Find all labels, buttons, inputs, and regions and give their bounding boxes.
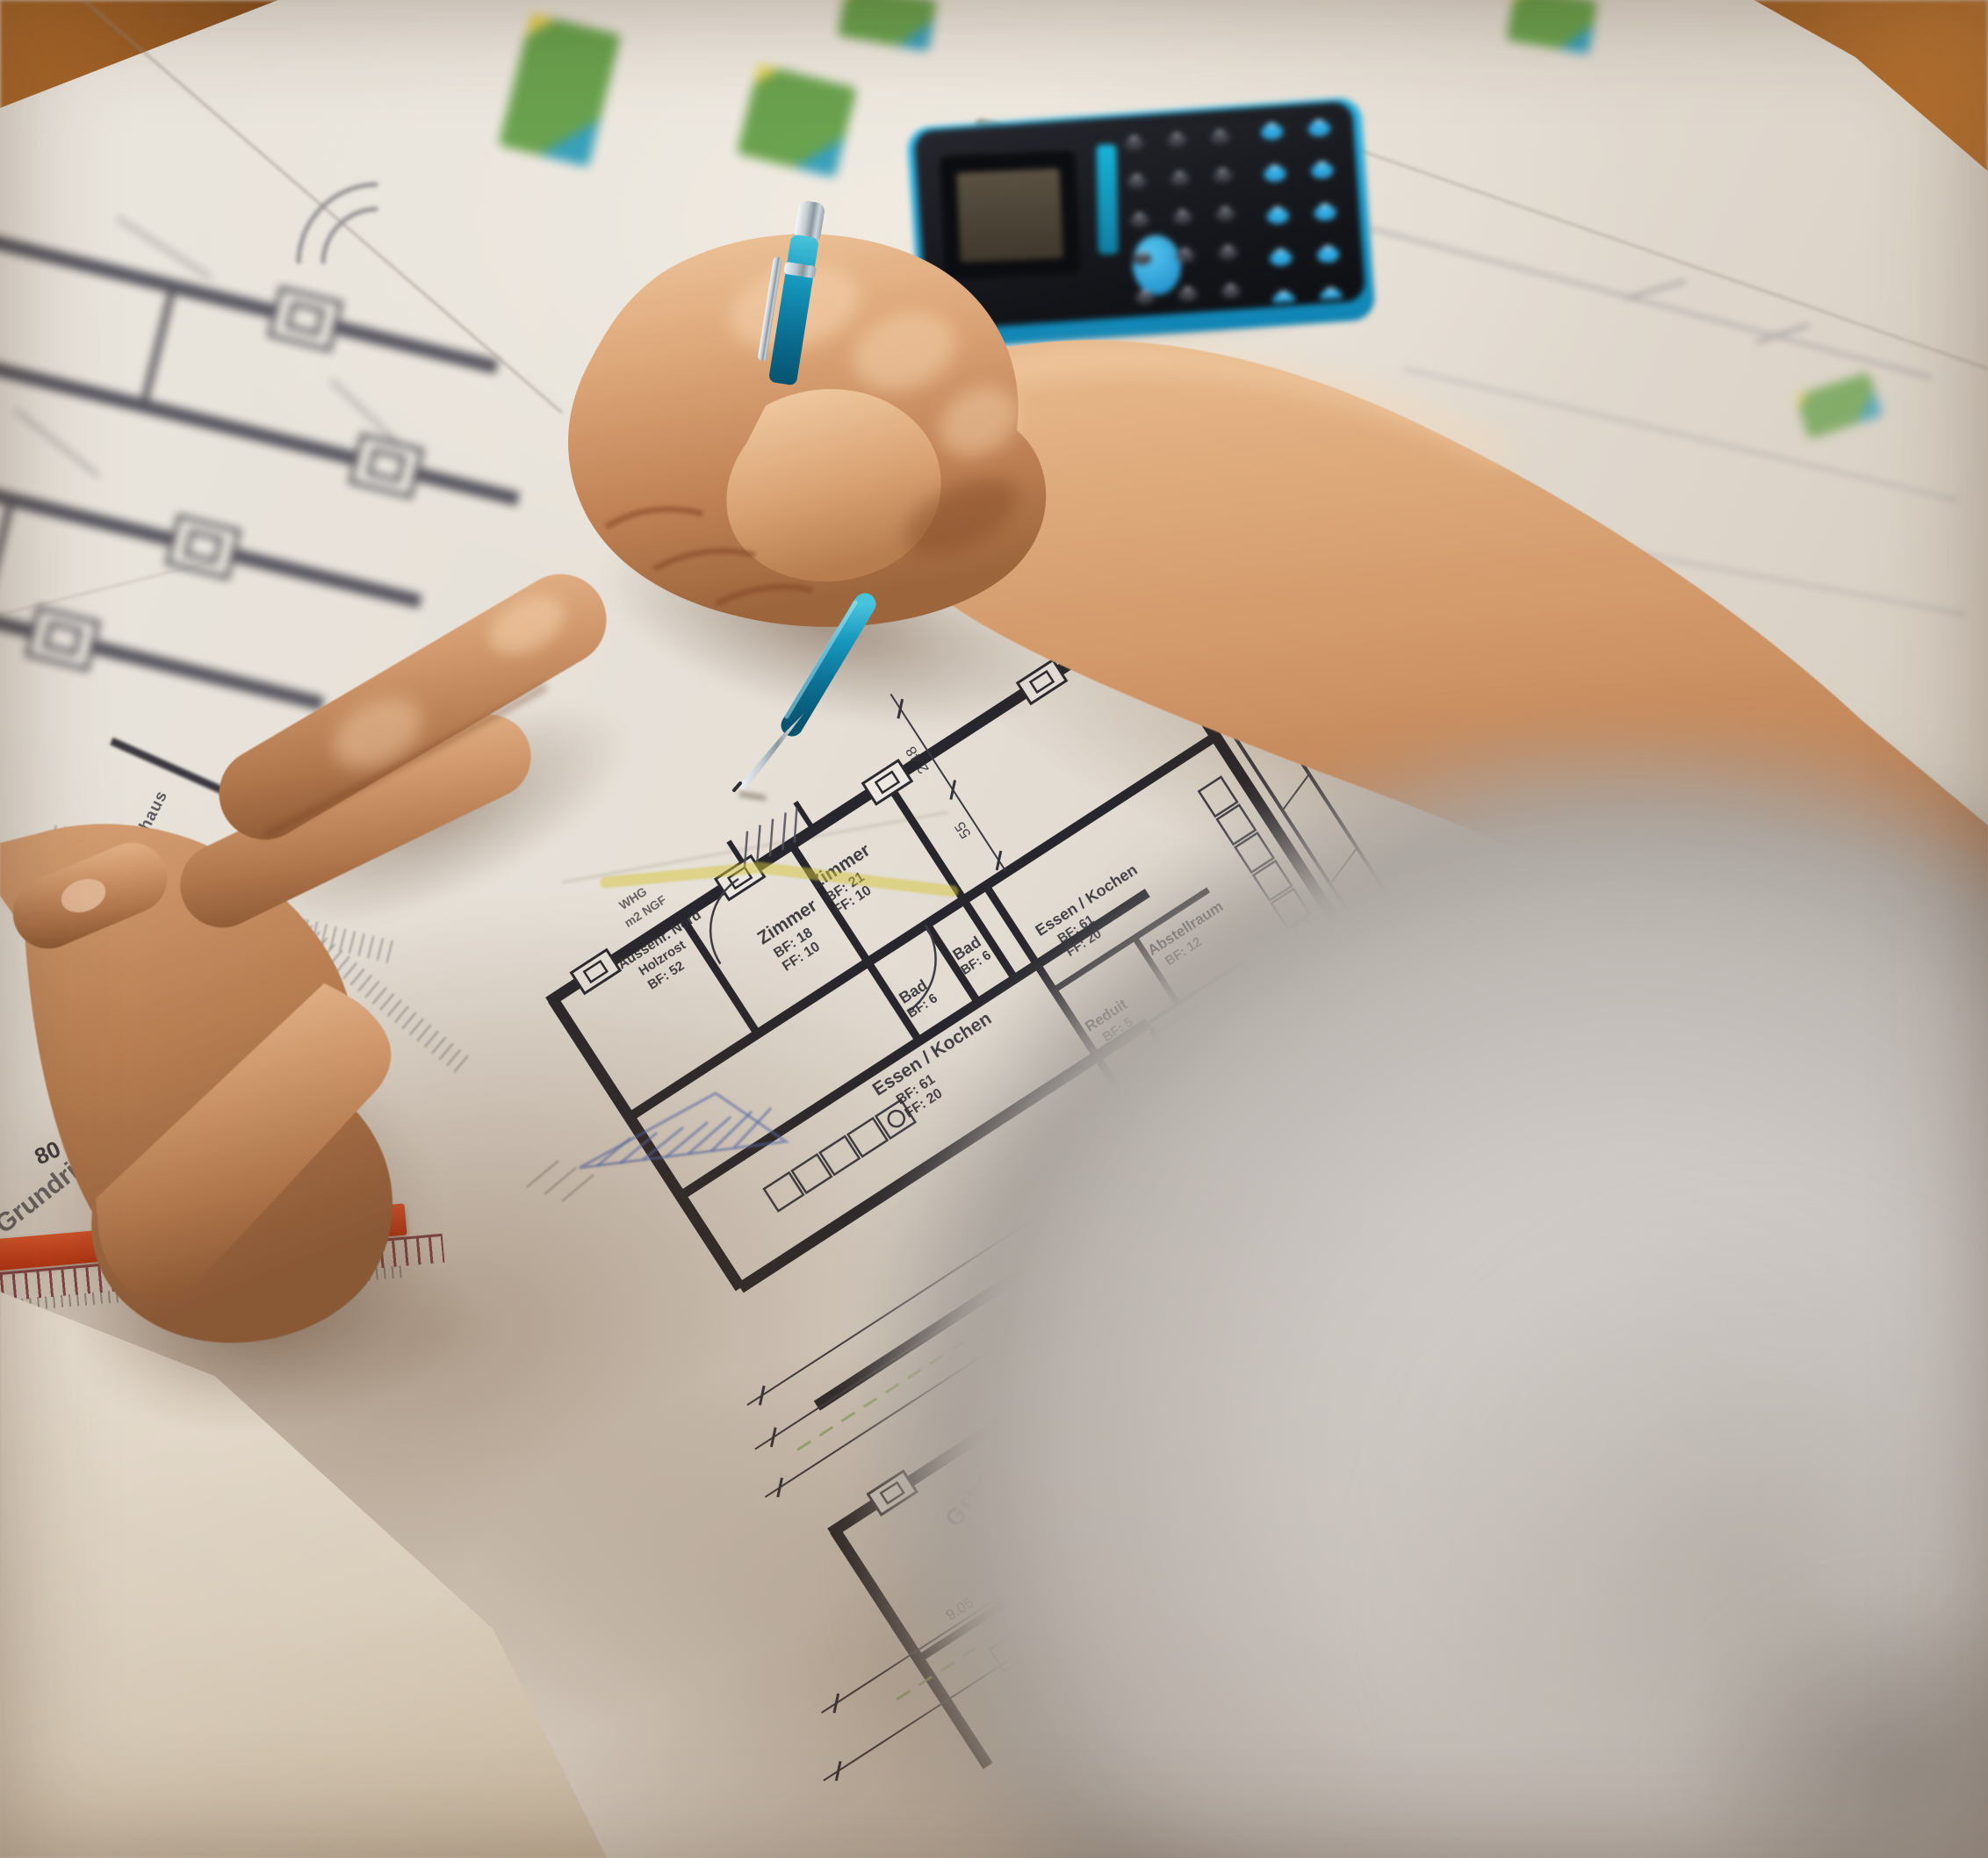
pencil-lead bbox=[734, 783, 740, 790]
pencil-tip-shadow bbox=[739, 794, 766, 798]
blurred-shoulder-corner bbox=[1668, 1581, 1988, 1858]
photo-architect-working-on-blueprints: Lift 2.95 55 9.05 63.50 9.08 9.05 63.50 … bbox=[0, 0, 1988, 1858]
pencil-metal-tip bbox=[738, 713, 804, 791]
